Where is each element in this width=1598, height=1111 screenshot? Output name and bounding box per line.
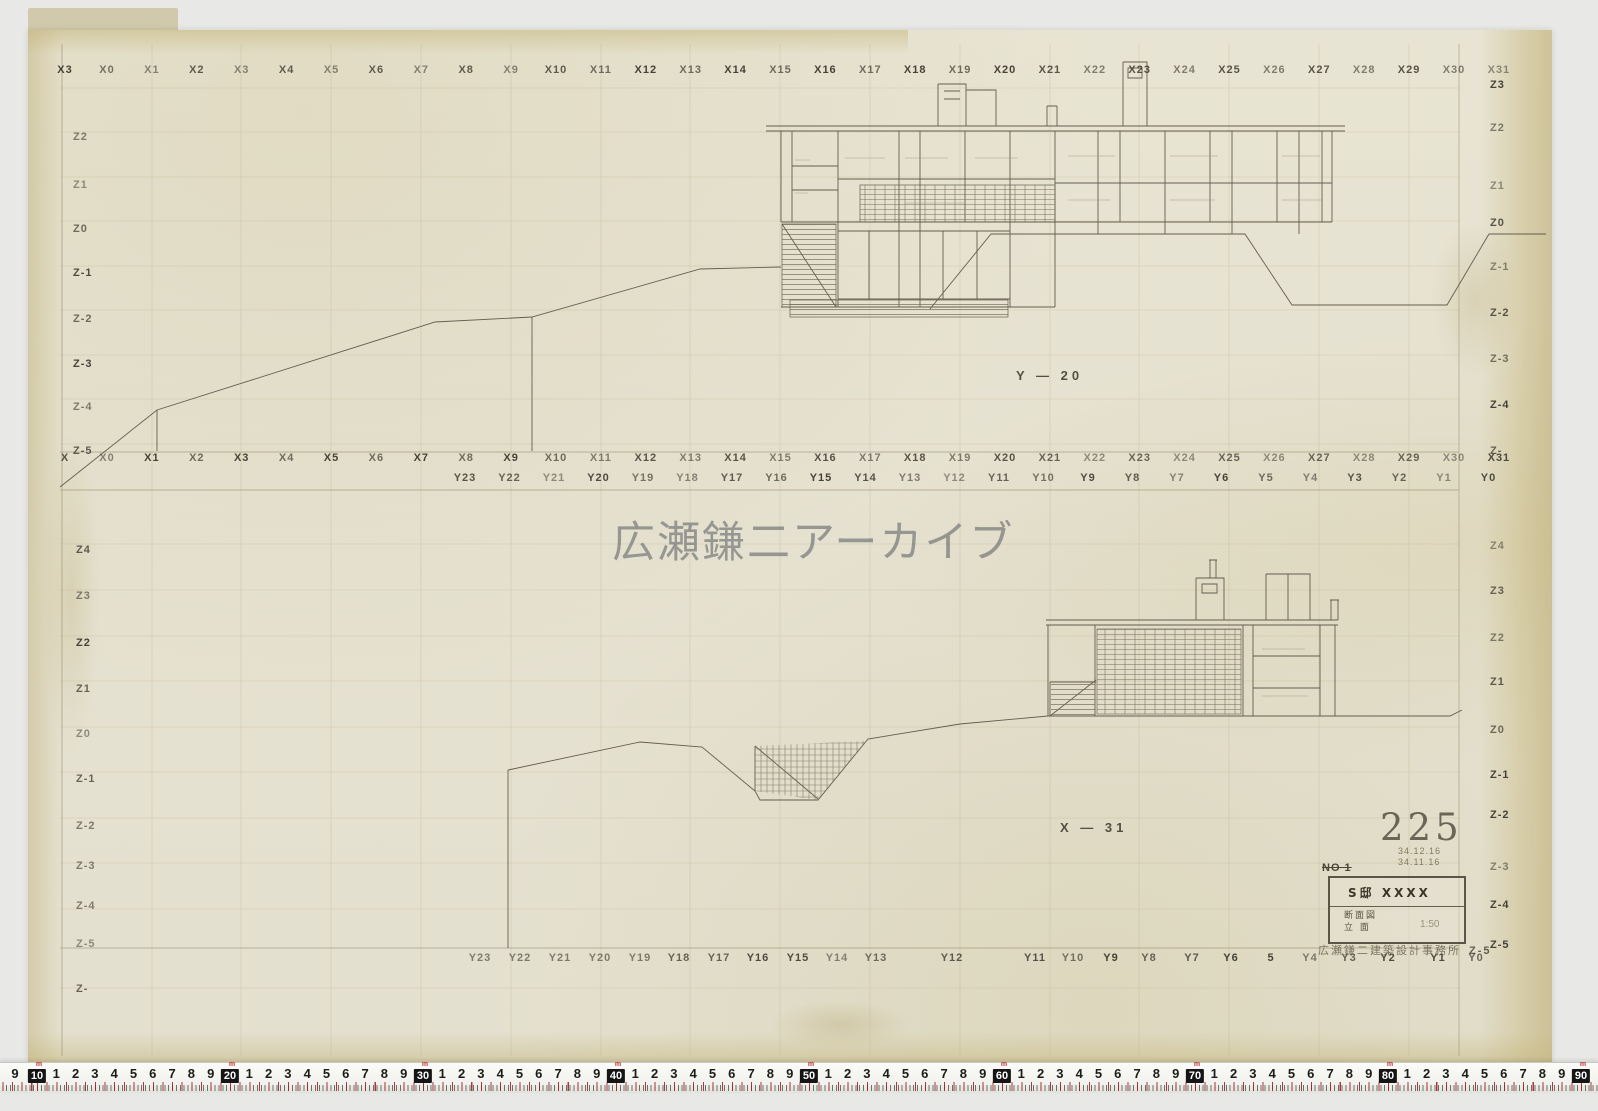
tape-digit: 5 <box>323 1066 330 1081</box>
grid-label-top-x: X5 <box>324 64 339 76</box>
tape-digit: 7 <box>940 1066 947 1081</box>
measuring-tape: 910m12345678920m12345678930m12345678940m… <box>0 1062 1598 1093</box>
grid-label-mid-x: X2 <box>189 452 204 464</box>
tape-digit: 4 <box>304 1066 311 1081</box>
tape-digit: 2 <box>265 1066 272 1081</box>
grid-label-mid-y: Y5 <box>1258 472 1273 484</box>
tape-tick-marks <box>0 1082 1598 1091</box>
grid-label-mid-x: X1 <box>144 452 159 464</box>
grid-label-mid-x: X17 <box>859 452 882 464</box>
grid-label-mid-y: Y1 <box>1436 472 1451 484</box>
tape-digit: 9 <box>593 1066 600 1081</box>
tape-digit: 8 <box>574 1066 581 1081</box>
grid-label-bottom-y: Y20 <box>589 952 612 964</box>
tape-digit: 6 <box>535 1066 542 1081</box>
tape-digit: 1 <box>1211 1066 1218 1081</box>
grid-label-top-x: X7 <box>414 64 429 76</box>
grid-label-left-z: Z-1 <box>76 773 96 785</box>
grid-label-mid-x: X21 <box>1039 452 1062 464</box>
grid-label-mid-x: X23 <box>1128 452 1151 464</box>
tape-digit: 1 <box>1404 1066 1411 1081</box>
grid-label-mid-y: Y4 <box>1303 472 1318 484</box>
grid-label-mid-x: X15 <box>769 452 792 464</box>
grid-label-left-z: Z4 <box>76 544 91 556</box>
grid-label-right-z: Z0 <box>1490 724 1505 736</box>
title-block-project: S邸 XXXX <box>1330 878 1464 907</box>
grid-label-top-x: X22 <box>1084 64 1107 76</box>
tape-decade-number: 60 <box>993 1069 1011 1083</box>
grid-label-bottom-y: Y15 <box>787 952 810 964</box>
stamp-number-label: NO 1 <box>1322 862 1352 874</box>
office-name: 広瀬鎌二建築設計事務所 <box>1318 944 1461 957</box>
tape-digit: 1 <box>825 1066 832 1081</box>
tape-digit: 4 <box>111 1066 118 1081</box>
upper-section-drawing <box>60 62 1546 487</box>
grid-label-top-x: X1 <box>144 64 159 76</box>
tape-digit: 8 <box>960 1066 967 1081</box>
grid-label-bottom-y: Y14 <box>826 952 849 964</box>
corner-z-label: Z-5 <box>1469 945 1492 957</box>
grid-label-right-z: Z-1 <box>1490 261 1510 273</box>
tape-digit: 1 <box>632 1066 639 1081</box>
grid-label-top-x: X26 <box>1263 64 1286 76</box>
grid-label-mid-x: X3 <box>234 452 249 464</box>
tape-digit: 4 <box>883 1066 890 1081</box>
title-block-scale: 1:50 <box>1420 907 1464 941</box>
grid-label-bottom-y: Y7 <box>1184 952 1199 964</box>
tape-digit: 2 <box>1230 1066 1237 1081</box>
grid-label-top-x: X12 <box>635 64 658 76</box>
tape-digit: 4 <box>690 1066 697 1081</box>
grid-label-right-z: Z4 <box>1490 540 1505 552</box>
tape-digit: 4 <box>1462 1066 1469 1081</box>
archive-watermark: 広瀬鎌二アーカイブ <box>612 508 1014 570</box>
grid-label-mid-x: X8 <box>458 452 473 464</box>
grid-label-bottom-y: 5 <box>1267 952 1274 964</box>
tape-digit: 1 <box>246 1066 253 1081</box>
tape-digit: 3 <box>1442 1066 1449 1081</box>
grid-label-top-x: X18 <box>904 64 927 76</box>
grid-label-left-z: Z-4 <box>76 900 96 912</box>
tape-meter-mark: m <box>422 1061 428 1068</box>
grid-label-top-x: X21 <box>1039 64 1062 76</box>
grid-label-right-z: Z2 <box>1490 632 1505 644</box>
grid-label-bottom-y: Y6 <box>1223 952 1238 964</box>
tape-digit: 5 <box>709 1066 716 1081</box>
tape-digit: 3 <box>670 1066 677 1081</box>
tape-meter-mark: m <box>229 1061 235 1068</box>
grid-label-left-z: Z- <box>76 983 88 995</box>
tape-digit: 7 <box>1326 1066 1333 1081</box>
stamp-dates: 34.12.16 34.11.16 <box>1398 846 1441 868</box>
grid-label-top-x: X17 <box>859 64 882 76</box>
grid-label-mid-y: Y20 <box>587 472 610 484</box>
grid-label-mid-x: X <box>61 452 69 464</box>
tape-digit: 3 <box>477 1066 484 1081</box>
grid-label-mid-y: Y14 <box>854 472 877 484</box>
tape-digit: 9 <box>1172 1066 1179 1081</box>
tape-digit: 8 <box>381 1066 388 1081</box>
grid-label-left-z: Z-2 <box>76 820 96 832</box>
tape-digit: 4 <box>1076 1066 1083 1081</box>
grid-label-mid-y: Y3 <box>1347 472 1362 484</box>
tape-meter-mark: m <box>615 1061 621 1068</box>
grid-label-right-z: Z-4 <box>1490 399 1510 411</box>
grid-label-mid-y: Y0 <box>1481 472 1496 484</box>
grid-label-top-x: X20 <box>994 64 1017 76</box>
office-stamp: 広瀬鎌二建築設計事務所Z-5 <box>1318 942 1492 958</box>
grid-label-mid-x: X20 <box>994 452 1017 464</box>
grid-label-bottom-y: Y9 <box>1103 952 1118 964</box>
grid-label-mid-x: X6 <box>369 452 384 464</box>
tape-digit: 6 <box>149 1066 156 1081</box>
grid-label-bottom-y: Y10 <box>1062 952 1085 964</box>
grid-label-top-x: X15 <box>769 64 792 76</box>
grid-label-left-z: Z1 <box>73 179 88 191</box>
tape-digit: 9 <box>1365 1066 1372 1081</box>
grid-label-mid-x: X13 <box>679 452 702 464</box>
tape-digit: 7 <box>1133 1066 1140 1081</box>
grid-label-top-x: X10 <box>545 64 568 76</box>
grid-label-right-z: Z3 <box>1490 79 1505 91</box>
grid-label-mid-x: X12 <box>635 452 658 464</box>
tape-digit: 2 <box>1037 1066 1044 1081</box>
tape-decade-number: 50 <box>800 1069 818 1083</box>
grid-label-mid-x: X26 <box>1263 452 1286 464</box>
tape-digit: 8 <box>1346 1066 1353 1081</box>
tape-decade-number: 30 <box>414 1069 432 1083</box>
tape-digit: 8 <box>1153 1066 1160 1081</box>
tape-digit: 8 <box>188 1066 195 1081</box>
grid-label-mid-x: X7 <box>414 452 429 464</box>
grid-label-top-x: X14 <box>724 64 747 76</box>
tape-digit: 7 <box>1519 1066 1526 1081</box>
grid-label-mid-y: Y17 <box>721 472 744 484</box>
grid-label-left-z: Z0 <box>73 223 88 235</box>
grid-label-left-z: Z-5 <box>76 938 96 950</box>
title-block-drawing-type: 断面図 立 面 <box>1330 907 1420 941</box>
grid-label-mid-y: Y10 <box>1032 472 1055 484</box>
grid-label-mid-y: Y18 <box>676 472 699 484</box>
grid-label-mid-y: Y2 <box>1392 472 1407 484</box>
tape-digit: 7 <box>747 1066 754 1081</box>
tape-digit: 7 <box>554 1066 561 1081</box>
grid-label-top-x: X9 <box>503 64 518 76</box>
tape-digit: 9 <box>400 1066 407 1081</box>
lower-section-caption: X — 31 <box>1060 820 1127 835</box>
grid-label-right-z: Z1 <box>1490 180 1505 192</box>
tape-decade-number: 90 <box>1572 1069 1590 1083</box>
tape-digit: 9 <box>11 1066 18 1081</box>
grid-label-right-z: Z-5 <box>1490 939 1510 951</box>
grid-label-top-x: X24 <box>1173 64 1196 76</box>
grid-label-right-z: Z1 <box>1490 676 1505 688</box>
tape-digit: 3 <box>1249 1066 1256 1081</box>
grid-label-mid-y: Y19 <box>632 472 655 484</box>
tape-meter-mark: m <box>1001 1061 1007 1068</box>
grid-label-top-x: X8 <box>458 64 473 76</box>
tape-decade-number: 40 <box>607 1069 625 1083</box>
tape-digit: 3 <box>91 1066 98 1081</box>
grid-label-mid-y: Y11 <box>988 472 1010 484</box>
grid-label-mid-x: X9 <box>503 452 518 464</box>
grid-label-top-x: X11 <box>590 64 612 76</box>
grid-label-top-x: X6 <box>369 64 384 76</box>
tape-meter-mark: m <box>36 1061 42 1068</box>
tape-digit: 2 <box>1423 1066 1430 1081</box>
grid-label-bottom-y: Y8 <box>1141 952 1156 964</box>
grid-label-top-x: X23 <box>1128 64 1151 76</box>
grid-label-bottom-y: Y23 <box>469 952 492 964</box>
grid-label-left-z: Z-2 <box>73 313 93 325</box>
grid-label-bottom-y: Y19 <box>629 952 652 964</box>
grid-label-right-z: Z-1 <box>1490 769 1510 781</box>
tape-digit: 6 <box>728 1066 735 1081</box>
tape-digit: 6 <box>921 1066 928 1081</box>
tape-digit: 5 <box>516 1066 523 1081</box>
grid-label-top-x: X16 <box>814 64 837 76</box>
tape-digit: 5 <box>902 1066 909 1081</box>
tape-decade-number: 20 <box>221 1069 239 1083</box>
tape-digit: 6 <box>1307 1066 1314 1081</box>
tape-digit: 8 <box>767 1066 774 1081</box>
tape-digit: 3 <box>1056 1066 1063 1081</box>
grid-label-top-x: X31 <box>1488 64 1511 76</box>
grid-label-top-x: X4 <box>279 64 294 76</box>
tape-digit: 9 <box>786 1066 793 1081</box>
grid-label-bottom-y: Y4 <box>1302 952 1317 964</box>
stamp-date-2: 34.11.16 <box>1398 857 1441 868</box>
tape-meter-mark: m <box>808 1061 814 1068</box>
tape-digit: 4 <box>1269 1066 1276 1081</box>
tape-digit: 5 <box>1288 1066 1295 1081</box>
grid-label-left-z: Z-5 <box>73 445 93 457</box>
tape-digit: 3 <box>284 1066 291 1081</box>
tape-decade-number: 80 <box>1379 1069 1397 1083</box>
drawing-type-line2: 立 面 <box>1344 922 1420 934</box>
tape-meter-mark: m <box>1580 1061 1586 1068</box>
tape-digit: 5 <box>130 1066 137 1081</box>
grid-label-top-x: X28 <box>1353 64 1376 76</box>
grid-label-mid-x: X22 <box>1084 452 1107 464</box>
tape-digit: 1 <box>1018 1066 1025 1081</box>
tape-digit: 6 <box>342 1066 349 1081</box>
grid-label-mid-x: X5 <box>324 452 339 464</box>
grid-label-mid-x: X16 <box>814 452 837 464</box>
grid-label-mid-x: X10 <box>545 452 568 464</box>
grid-label-mid-y: Y12 <box>943 472 966 484</box>
tape-digit: 1 <box>439 1066 446 1081</box>
grid-label-top-x: X29 <box>1398 64 1421 76</box>
tape-digit: 9 <box>207 1066 214 1081</box>
grid-label-right-z: Z3 <box>1490 585 1505 597</box>
tape-digit: 2 <box>844 1066 851 1081</box>
tape-digit: 2 <box>458 1066 465 1081</box>
grid-label-right-z: Z-3 <box>1490 353 1510 365</box>
grid-label-top-x: X25 <box>1218 64 1241 76</box>
grid-label-top-x: X2 <box>189 64 204 76</box>
tape-digit: 2 <box>72 1066 79 1081</box>
grid-label-mid-x: X19 <box>949 452 972 464</box>
grid-label-top-x: X13 <box>679 64 702 76</box>
tape-digit: 1 <box>53 1066 60 1081</box>
grid-label-mid-y: Y23 <box>454 472 477 484</box>
grid-label-bottom-y: Y18 <box>668 952 691 964</box>
grid-label-bottom-y: Y12 <box>941 952 964 964</box>
tape-digit: 9 <box>1558 1066 1565 1081</box>
grid-label-mid-x: X28 <box>1353 452 1376 464</box>
grid-label-left-z: Z3 <box>76 590 91 602</box>
grid-label-left-z: Z-1 <box>73 267 93 279</box>
sheet-number: 225 <box>1380 806 1463 849</box>
grid-label-mid-x: X0 <box>99 452 114 464</box>
drawing-type-line1: 断面図 <box>1344 910 1420 922</box>
grid-label-bottom-y: Y16 <box>747 952 770 964</box>
grid-label-left-z: Z-3 <box>76 860 96 872</box>
grid-label-mid-y: Y21 <box>543 472 566 484</box>
grid-label-top-x: X0 <box>99 64 114 76</box>
grid-label-mid-y: Y6 <box>1214 472 1229 484</box>
grid-label-left-z: Z-3 <box>73 358 93 370</box>
tape-digit: 7 <box>168 1066 175 1081</box>
grid-label-bottom-y: Y22 <box>509 952 532 964</box>
grid-label-mid-y: Y16 <box>765 472 788 484</box>
grid-label-mid-x: X24 <box>1173 452 1196 464</box>
grid-label-right-z: Z- <box>1490 445 1502 457</box>
grid-label-right-z: Z-3 <box>1490 861 1510 873</box>
scanned-drawing-page: X3X0X1X2X3X4X5X6X7X8X9X10X11X12X13X14X15… <box>0 0 1598 1111</box>
tape-digit: 7 <box>361 1066 368 1081</box>
grid-label-left-z: Z0 <box>76 728 91 740</box>
tape-decade-number: 70 <box>1186 1069 1204 1083</box>
grid-label-top-x: X3 <box>234 64 249 76</box>
tape-digit: 5 <box>1095 1066 1102 1081</box>
grid-label-top-x: X30 <box>1443 64 1466 76</box>
grid-label-top-x: X3 <box>57 64 72 76</box>
grid-label-bottom-y: Y21 <box>549 952 572 964</box>
grid-label-mid-y: Y15 <box>810 472 833 484</box>
grid-label-mid-x: X25 <box>1218 452 1241 464</box>
grid-label-bottom-y: Y17 <box>708 952 731 964</box>
grid-label-left-z: Z-4 <box>73 401 93 413</box>
tape-decade-number: 10 <box>28 1069 46 1083</box>
grid-label-bottom-y: Y11 <box>1024 952 1046 964</box>
tape-digit: 2 <box>651 1066 658 1081</box>
grid-label-mid-y: Y7 <box>1169 472 1184 484</box>
grid-label-right-z: Z-4 <box>1490 899 1510 911</box>
grid-label-left-z: Z2 <box>76 637 91 649</box>
stamp-date-1: 34.12.16 <box>1398 846 1441 857</box>
grid-label-right-z: Z2 <box>1490 122 1505 134</box>
grid-label-right-z: Z0 <box>1490 217 1505 229</box>
grid-label-mid-x: X27 <box>1308 452 1331 464</box>
grid-label-top-x: X27 <box>1308 64 1331 76</box>
grid-label-mid-x: X18 <box>904 452 927 464</box>
tape-digit: 6 <box>1114 1066 1121 1081</box>
tape-digit: 8 <box>1539 1066 1546 1081</box>
grid-label-right-z: Z-2 <box>1490 307 1510 319</box>
grid-label-left-z: Z1 <box>76 683 91 695</box>
grid-label-mid-x: X30 <box>1443 452 1466 464</box>
grid-label-bottom-y: Y13 <box>865 952 888 964</box>
tape-digit: 6 <box>1500 1066 1507 1081</box>
tape-digit: 5 <box>1481 1066 1488 1081</box>
tape-digit: 4 <box>497 1066 504 1081</box>
grid-label-right-z: Z-2 <box>1490 809 1510 821</box>
grid-label-mid-x: X14 <box>724 452 747 464</box>
grid-label-mid-y: Y9 <box>1080 472 1095 484</box>
title-block: S邸 XXXX 断面図 立 面 1:50 <box>1328 876 1466 944</box>
grid-label-mid-y: Y13 <box>899 472 922 484</box>
tape-digit: 3 <box>863 1066 870 1081</box>
grid-label-mid-x: X29 <box>1398 452 1421 464</box>
grid-label-mid-x: X4 <box>279 452 294 464</box>
grid-label-mid-y: Y22 <box>498 472 521 484</box>
grid-label-left-z: Z2 <box>73 131 88 143</box>
upper-section-caption: Y — 20 <box>1016 368 1083 383</box>
grid-label-top-x: X19 <box>949 64 972 76</box>
grid-label-mid-x: X11 <box>590 452 612 464</box>
tape-digit: 9 <box>979 1066 986 1081</box>
tape-meter-mark: m <box>1194 1061 1200 1068</box>
tape-meter-mark: m <box>1387 1061 1393 1068</box>
grid-label-mid-y: Y8 <box>1125 472 1140 484</box>
